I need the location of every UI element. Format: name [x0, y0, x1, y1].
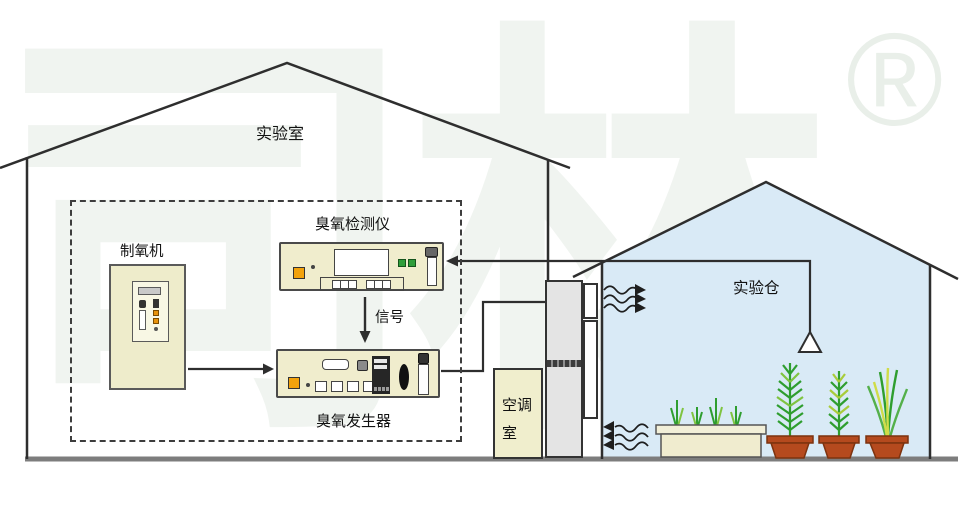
oxygen-machine-indicator-2	[153, 318, 159, 324]
generator-slot	[374, 359, 387, 363]
detector-green-led-2	[408, 259, 416, 267]
generator-dip-switch	[374, 387, 377, 391]
ac-room-label: 空调室	[502, 392, 536, 448]
oxygen-machine-knob	[139, 300, 146, 308]
generator-knob	[357, 360, 368, 371]
generator-power-button	[288, 377, 300, 389]
generator-dip-switch	[386, 387, 389, 391]
generator-key	[347, 381, 359, 392]
hvac-top-vent	[583, 283, 598, 319]
oxygen-machine-indicator-1	[153, 310, 159, 316]
generator-display	[322, 359, 349, 370]
detector-inlet-cap	[425, 247, 438, 257]
generator-key	[315, 381, 327, 392]
detector-green-led-1	[398, 259, 406, 267]
detector-key	[348, 280, 357, 289]
detector-power-button	[293, 267, 305, 279]
oxygen-machine-dot	[154, 327, 158, 331]
generator-control-module	[372, 356, 390, 394]
oxygen-machine-display	[138, 287, 161, 295]
ozone-generator-label: 臭氧发生器	[316, 410, 391, 431]
hvac-duct-unit	[545, 280, 583, 458]
ozone-detector-unit	[279, 242, 444, 291]
detector-keypad	[320, 277, 404, 291]
detector-sample-column	[427, 257, 437, 286]
signal-label: 信号	[375, 306, 404, 327]
generator-dip-switch	[378, 387, 381, 391]
ozone-detector-label: 臭氧检测仪	[315, 213, 390, 234]
hvac-grille	[547, 360, 581, 367]
diagram-canvas: 司林 ®	[0, 0, 963, 524]
generator-dip-switch	[382, 387, 385, 391]
generator-outlet-cap	[418, 353, 429, 364]
detector-display-screen	[334, 249, 389, 276]
oxygen-machine-button	[153, 299, 159, 308]
generator-key	[331, 381, 343, 392]
oxygen-machine-gauge	[139, 310, 146, 330]
detector-indicator-dot	[311, 265, 315, 269]
ozone-generator-unit	[276, 349, 440, 398]
experiment-chamber-label: 实验仓	[733, 276, 780, 298]
generator-indicator-dot	[306, 383, 310, 387]
detector-key	[382, 280, 391, 289]
oxygen-machine-cabinet	[109, 264, 186, 390]
hvac-bottom-vent	[583, 320, 598, 419]
generator-handle	[399, 364, 409, 390]
generator-outlet-column	[418, 364, 429, 395]
laboratory-label: 实验室	[256, 120, 304, 144]
oxygen-machine-label: 制氧机	[120, 240, 164, 261]
generator-slot	[374, 365, 387, 369]
air-conditioning-room: 空调室	[493, 368, 543, 459]
